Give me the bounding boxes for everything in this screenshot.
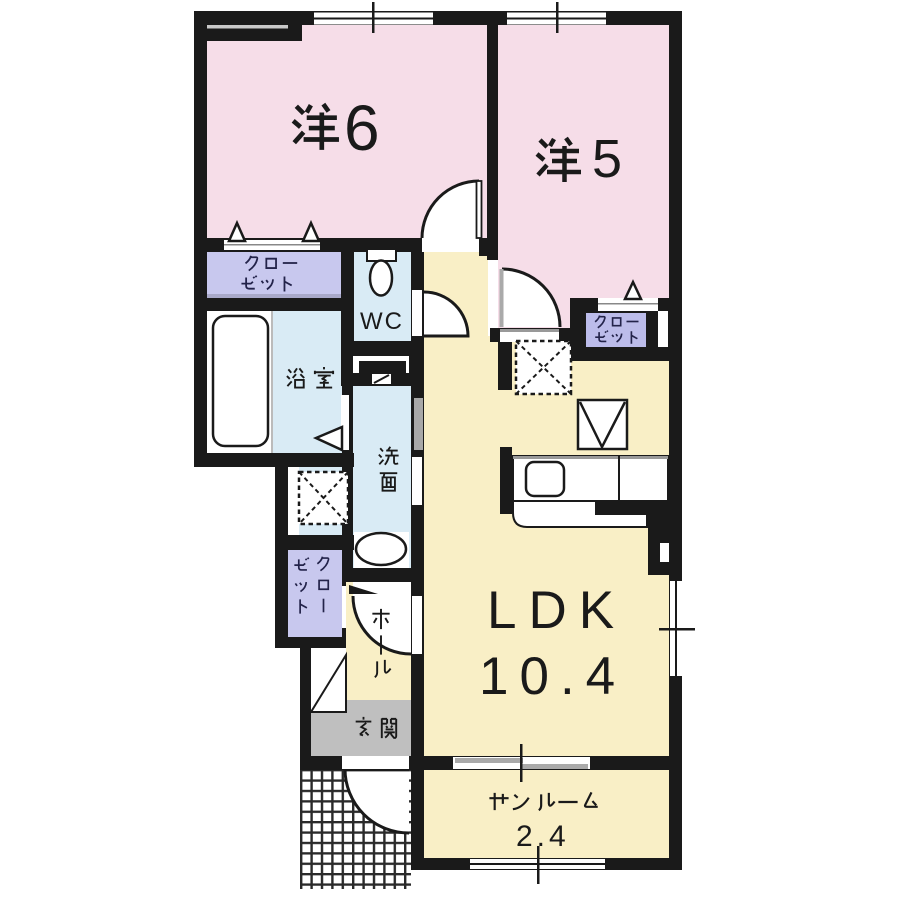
svg-text:5: 5 bbox=[592, 129, 622, 189]
svg-text:2.4: 2.4 bbox=[516, 820, 570, 853]
svg-text:10.4: 10.4 bbox=[479, 647, 626, 706]
svg-text:LDK: LDK bbox=[487, 581, 626, 640]
svg-text:WC: WC bbox=[360, 308, 404, 335]
svg-text:6: 6 bbox=[344, 92, 380, 164]
